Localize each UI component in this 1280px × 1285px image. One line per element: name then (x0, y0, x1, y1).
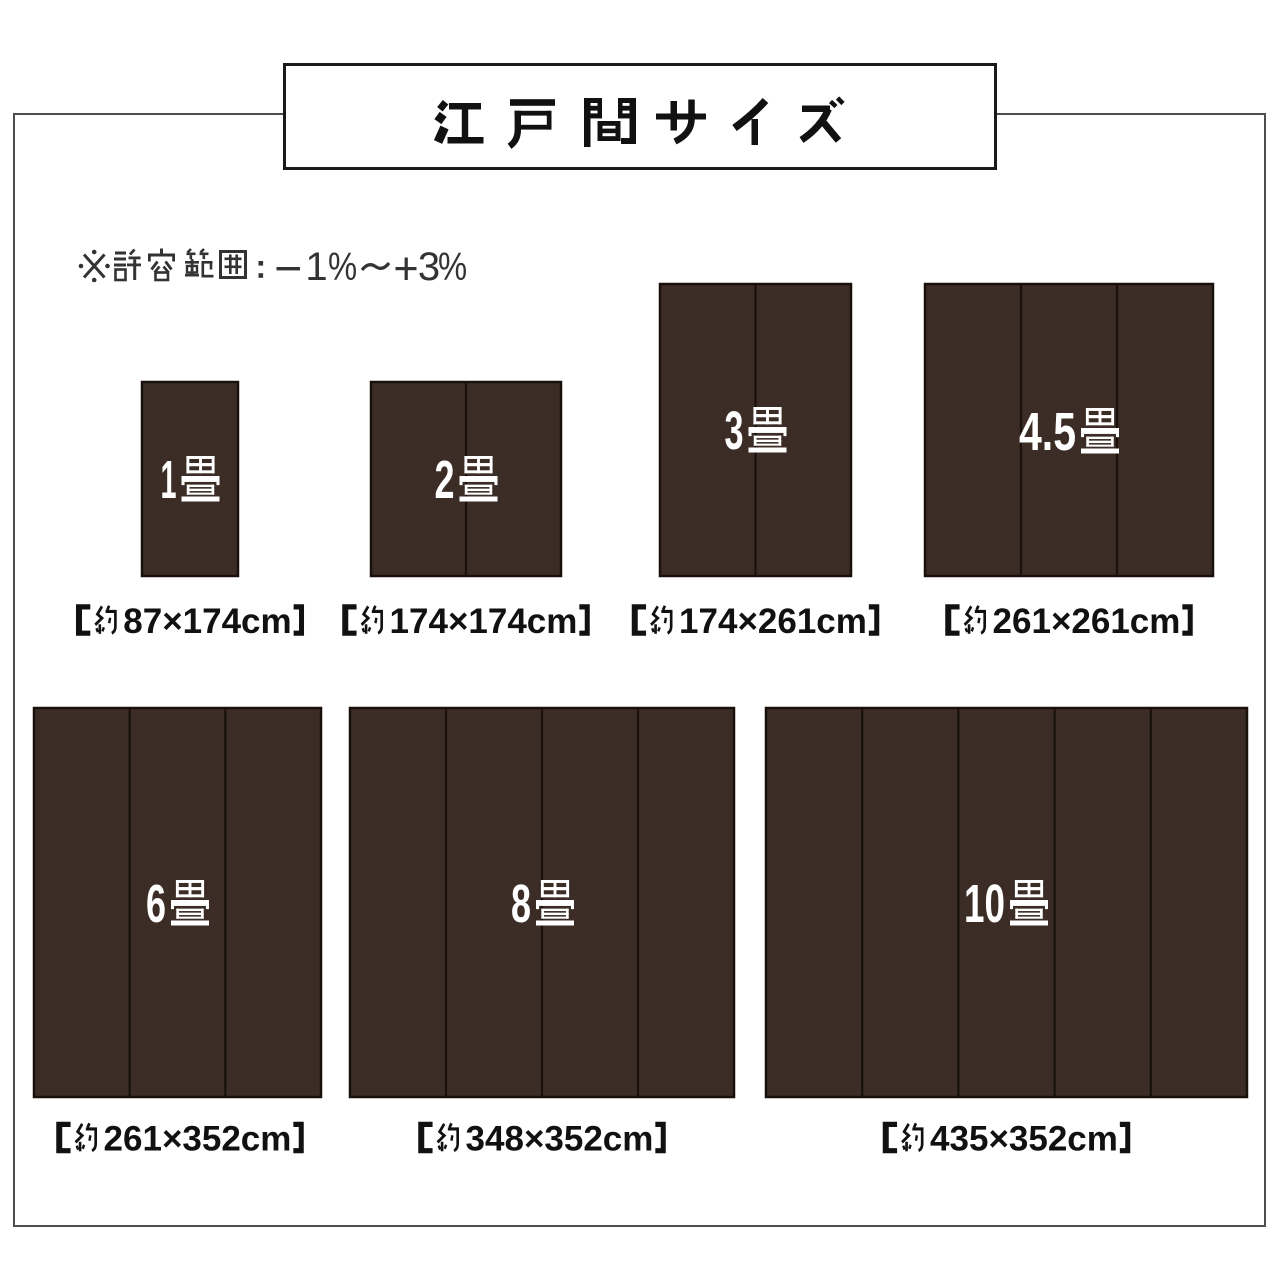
svg-text:261×261cm: 261×261cm (993, 602, 1181, 641)
svg-text:6: 6 (146, 874, 166, 934)
svg-text:174×174cm: 174×174cm (390, 602, 578, 641)
svg-text:3: 3 (725, 401, 744, 461)
svg-text:%: % (328, 244, 357, 288)
svg-text:1: 1 (161, 450, 177, 510)
svg-text:2: 2 (435, 450, 455, 510)
svg-text:3: 3 (418, 245, 440, 289)
svg-text:1: 1 (305, 245, 327, 289)
svg-text:%: % (438, 244, 467, 288)
svg-text:261×352cm: 261×352cm (104, 1120, 292, 1159)
svg-text:174×261cm: 174×261cm (679, 602, 867, 641)
svg-text:348×352cm: 348×352cm (466, 1120, 654, 1159)
svg-text:4.5: 4.5 (1019, 402, 1076, 462)
svg-text:8: 8 (511, 874, 531, 934)
svg-text:87×174cm: 87×174cm (123, 602, 291, 641)
svg-text:10: 10 (964, 874, 1005, 934)
svg-text:435×352cm: 435×352cm (930, 1120, 1118, 1159)
